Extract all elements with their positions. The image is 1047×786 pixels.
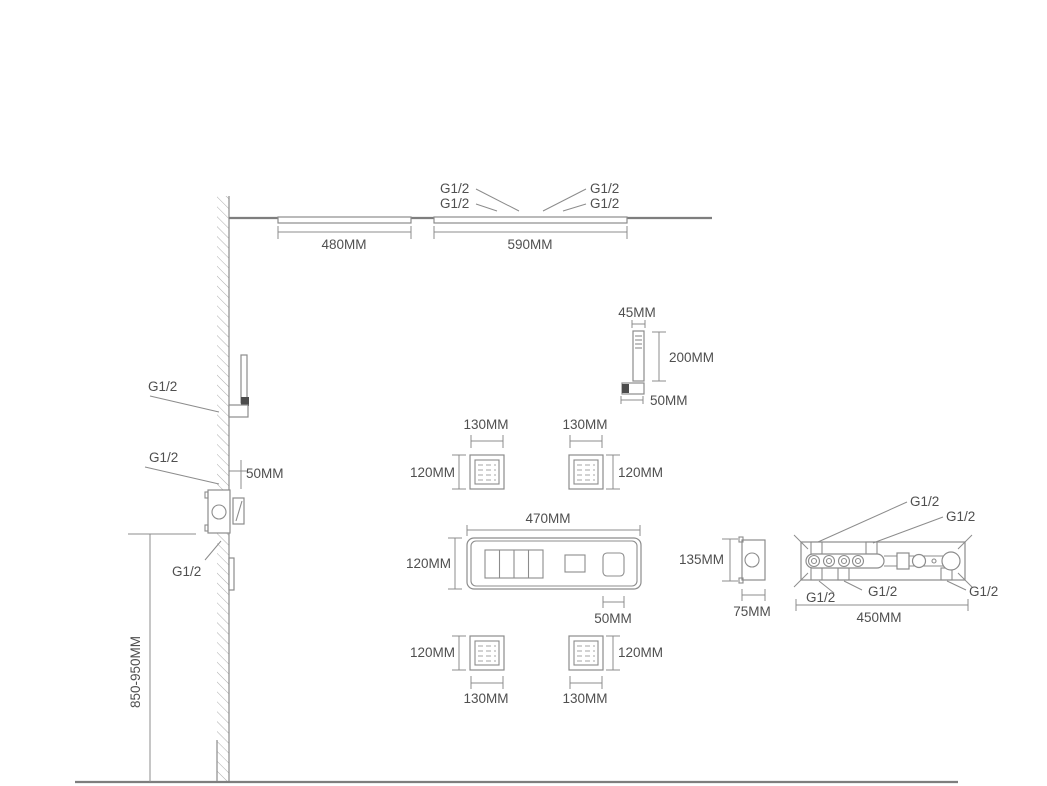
g12-label-top: G1/2 <box>946 509 975 524</box>
dim-label-130mm: 130MM <box>463 691 508 706</box>
body-jet-top-left: 130MM 120MM <box>410 417 509 489</box>
valve-tab <box>205 525 208 531</box>
dim-label-120mm: 120MM <box>410 465 455 480</box>
panel-outer-frame <box>467 538 641 589</box>
bracket-wall-plate <box>622 384 629 393</box>
g12-label-upper: G1/2 <box>148 379 177 394</box>
g12-label: G1/2 <box>590 181 619 196</box>
body-jet-bottom-left: 120MM 130MM <box>410 636 509 706</box>
ceiling-inlet-labels: G1/2 G1/2 G1/2 G1/2 <box>440 181 619 211</box>
wall-hand-shower: G1/2 <box>148 355 249 417</box>
installation-diagram: 480MM 590MM G1/2 G1/2 G1/2 G1/2 45MM <box>0 0 1047 786</box>
dimension-590mm: 590MM <box>434 226 627 252</box>
wall-holder-arm <box>229 405 248 417</box>
dim-label-120mm: 120MM <box>406 556 451 571</box>
g12-label-bottom: G1/2 <box>806 590 835 605</box>
cartridge-block <box>897 553 909 569</box>
hand-shower-handle <box>633 331 644 381</box>
leader-line <box>873 517 943 543</box>
leader-line <box>476 189 519 211</box>
diagram-canvas: 480MM 590MM G1/2 G1/2 G1/2 G1/2 45MM <box>0 0 1047 786</box>
dim-label-height: 850-950MM <box>128 636 143 708</box>
dim-label-200mm: 200MM <box>669 350 714 365</box>
wall-outlet-mid: G1/2 50MM <box>145 450 284 489</box>
g12-label-bottom: G1/2 <box>868 584 897 599</box>
dim-label-135mm: 135MM <box>679 552 724 567</box>
valve-rear-view: G1/2 G1/2 G1/2 G1/2 G1/2 450MM <box>794 494 998 625</box>
leader-line <box>145 467 219 484</box>
g12-label: G1/2 <box>440 181 469 196</box>
leader-line <box>818 502 907 542</box>
ceiling-shower-panel-large <box>434 217 627 223</box>
dim-label-130mm: 130MM <box>463 417 508 432</box>
dim-label-590mm: 590MM <box>507 237 552 252</box>
dim-label-450mm: 450MM <box>856 610 901 625</box>
leader-line <box>563 204 586 211</box>
dim-label-75mm: 75MM <box>733 604 771 619</box>
hand-shower-on-wall <box>241 355 247 403</box>
dim-label-130mm: 130MM <box>562 691 607 706</box>
valve-side-view: 135MM 75MM <box>679 537 771 619</box>
dim-label-50mm-button: 50MM <box>594 611 632 626</box>
body-jet-top-right: 130MM 120MM <box>562 417 663 489</box>
cartridge-knob <box>942 552 960 570</box>
ceiling-shower-panel-small <box>278 217 411 223</box>
leader-line <box>844 581 862 590</box>
dim-label-120mm: 120MM <box>618 645 663 660</box>
g12-label-top: G1/2 <box>910 494 939 509</box>
dim-label-50mm-wall: 50MM <box>246 466 284 481</box>
leader-line <box>543 189 586 211</box>
body-jet-bottom-right: 120MM 130MM <box>562 636 663 706</box>
ceiling-shower-panels: 480MM 590MM G1/2 G1/2 G1/2 G1/2 <box>278 181 627 252</box>
dim-label-480mm: 480MM <box>321 237 366 252</box>
leader-line <box>150 396 219 412</box>
g12-label: G1/2 <box>590 196 619 211</box>
g12-label: G1/2 <box>440 196 469 211</box>
g12-label-mid: G1/2 <box>149 450 178 465</box>
dim-label-470mm: 470MM <box>525 511 570 526</box>
leader-line <box>947 581 966 590</box>
dim-label-130mm: 130MM <box>562 417 607 432</box>
dim-label-120mm: 120MM <box>410 645 455 660</box>
dimension-480mm: 480MM <box>278 226 411 252</box>
dim-label-50mm-bracket: 50MM <box>650 393 688 408</box>
dim-label-45mm: 45MM <box>618 305 656 320</box>
valve-body <box>208 490 230 533</box>
dim-label-120mm: 120MM <box>618 465 663 480</box>
leader-line <box>476 204 497 211</box>
room-structure <box>75 196 958 782</box>
valve-tab <box>205 492 208 498</box>
lower-outlet-plate <box>229 558 234 590</box>
g12-label-bottom: G1/2 <box>969 584 998 599</box>
wall-mixer-valve-side: G1/2 <box>172 490 244 590</box>
hand-shower-detail: 45MM 200MM 50MM <box>618 305 714 408</box>
control-panel: 470MM 120MM 50MM <box>406 511 641 626</box>
g12-label-lower: G1/2 <box>172 564 201 579</box>
cartridge-circle <box>913 555 926 568</box>
wall-hatching <box>217 196 229 782</box>
